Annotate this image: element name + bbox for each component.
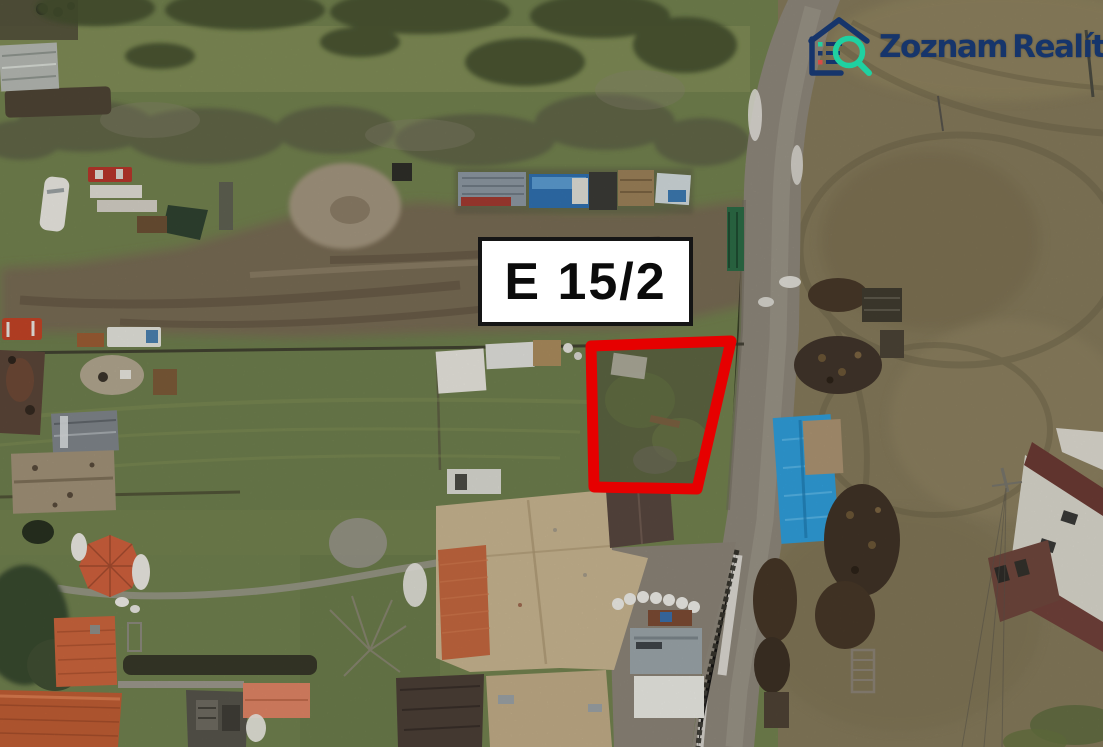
- aerial-photo-scene: [0, 0, 1103, 747]
- house-search-icon: [801, 14, 879, 80]
- photo-grain: [0, 0, 1103, 747]
- aerial-photo: E 15/2 ZoznamRealítsk: [0, 0, 1103, 747]
- parcel-label: E 15/2: [478, 237, 693, 326]
- brand-word-2: Realít: [1012, 29, 1103, 65]
- brand-wordmark: ZoznamRealítsk: [879, 29, 1103, 65]
- parcel-label-text: E 15/2: [504, 252, 666, 312]
- brand-word-1: Zoznam: [879, 29, 1007, 65]
- watermark-logo: ZoznamRealítsk: [801, 14, 1103, 80]
